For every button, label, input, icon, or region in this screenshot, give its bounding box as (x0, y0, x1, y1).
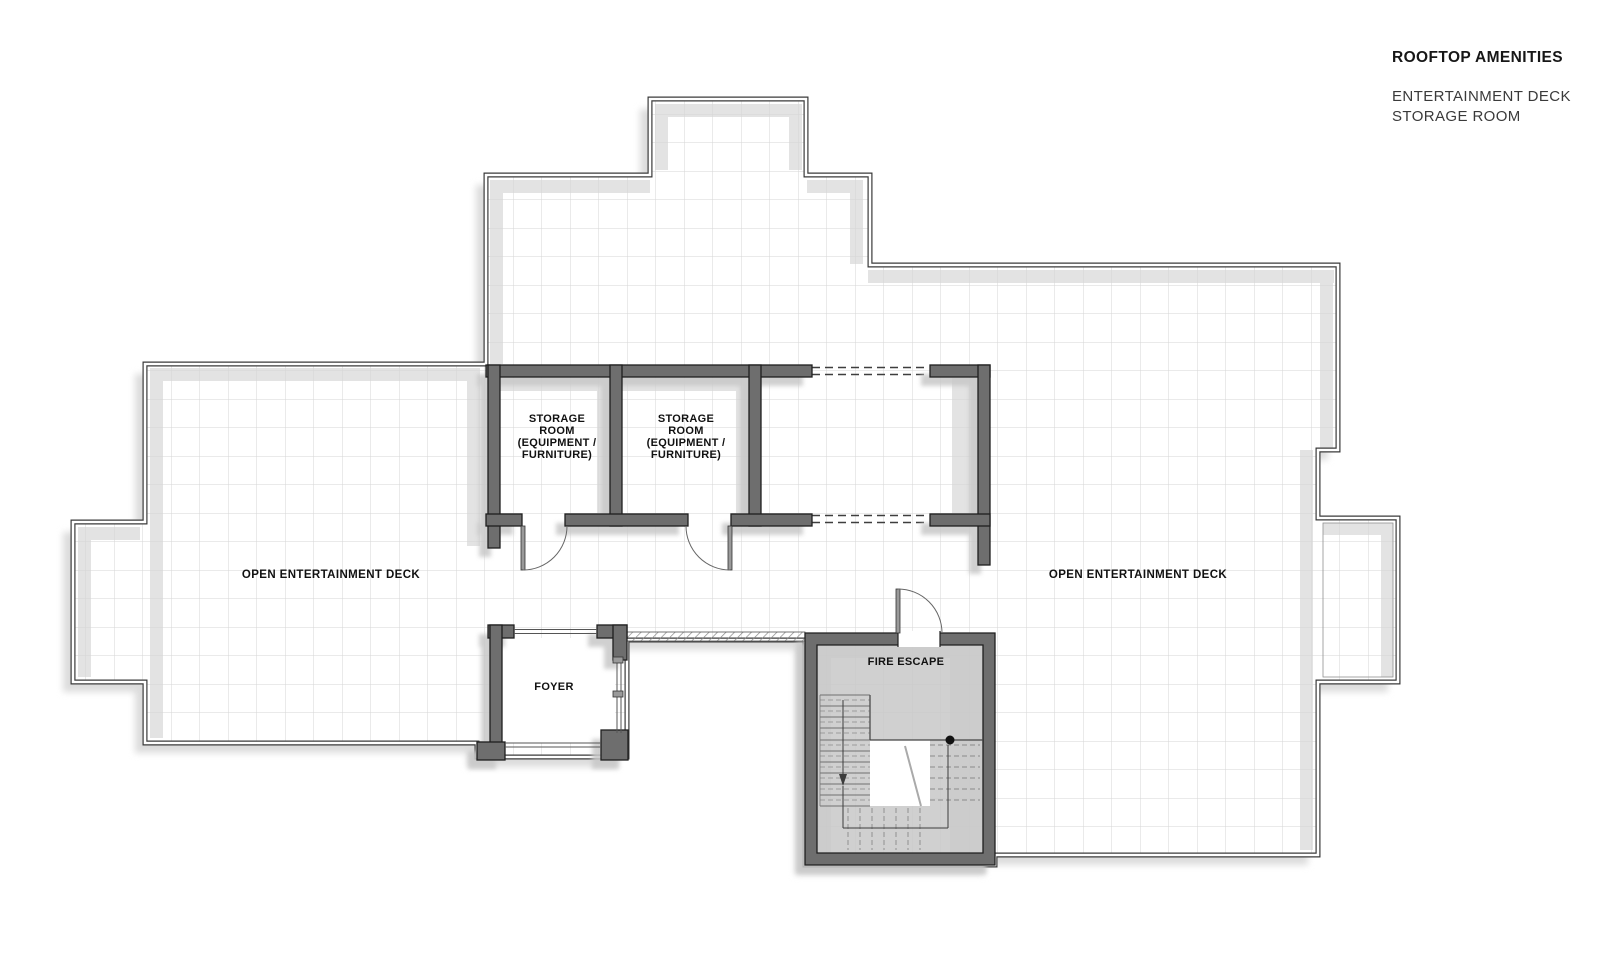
storage-divider-wall (610, 365, 622, 526)
storage-room-1-label-line3: (EQUIPMENT / (518, 437, 597, 449)
storage-room-2-label-line2: ROOM (668, 425, 703, 437)
fire-escape-door-leaf (896, 589, 900, 633)
storage-room-1-label-line1: STORAGE (529, 413, 585, 425)
storage-room-2-label-line1: STORAGE (658, 413, 714, 425)
fire-escape-label: FIRE ESCAPE (868, 656, 945, 668)
storage-room-1-label-line4: FURNITURE) (522, 449, 592, 461)
title-block: ROOFTOP AMENITIES ENTERTAINMENT DECK STO… (1392, 49, 1571, 125)
storage2-door-leaf (728, 526, 732, 570)
stair-reference-dot (946, 736, 955, 745)
foyer-door-hinge-mid (613, 691, 623, 697)
floor-plan-svg: STORAGE ROOM (EQUIPMENT / FURNITURE) STO… (0, 0, 1600, 957)
storage1-bottom-wall-stub (486, 514, 522, 526)
storage-room-1-label-line2: ROOM (539, 425, 574, 437)
open-bay-right-wall (978, 365, 990, 565)
storage-bottom-wall-mid (565, 514, 688, 526)
storage1-door-leaf (521, 526, 525, 570)
foyer-bottom-right-corner (601, 730, 628, 760)
louver-band (627, 632, 805, 641)
storage2-right-wall (749, 365, 761, 526)
foyer-door-hinge-top (613, 657, 623, 663)
plan-title: ROOFTOP AMENITIES (1392, 49, 1563, 66)
fire-escape-door-opening (898, 631, 940, 647)
open-deck-right-label: OPEN ENTERTAINMENT DECK (1049, 569, 1228, 581)
foyer-bottom-left-corner (477, 742, 505, 760)
plan-subtitle-2: STORAGE ROOM (1392, 108, 1521, 125)
storage-room-2-label-line4: FURNITURE) (651, 449, 721, 461)
plan-subtitle-1: ENTERTAINMENT DECK (1392, 88, 1571, 105)
storage-room-2-label-line3: (EQUIPMENT / (647, 437, 726, 449)
floor-plan-page: STORAGE ROOM (EQUIPMENT / FURNITURE) STO… (0, 0, 1600, 957)
foyer-left-wall (490, 625, 502, 757)
open-bay-bottom-corner-wall (930, 514, 990, 526)
foyer-label: FOYER (534, 681, 573, 693)
open-deck-left-label: OPEN ENTERTAINMENT DECK (242, 569, 421, 581)
foyer-right-wall-upper (613, 625, 627, 660)
storage-top-wall (486, 365, 812, 377)
storage2-bottom-wall-stub (731, 514, 812, 526)
